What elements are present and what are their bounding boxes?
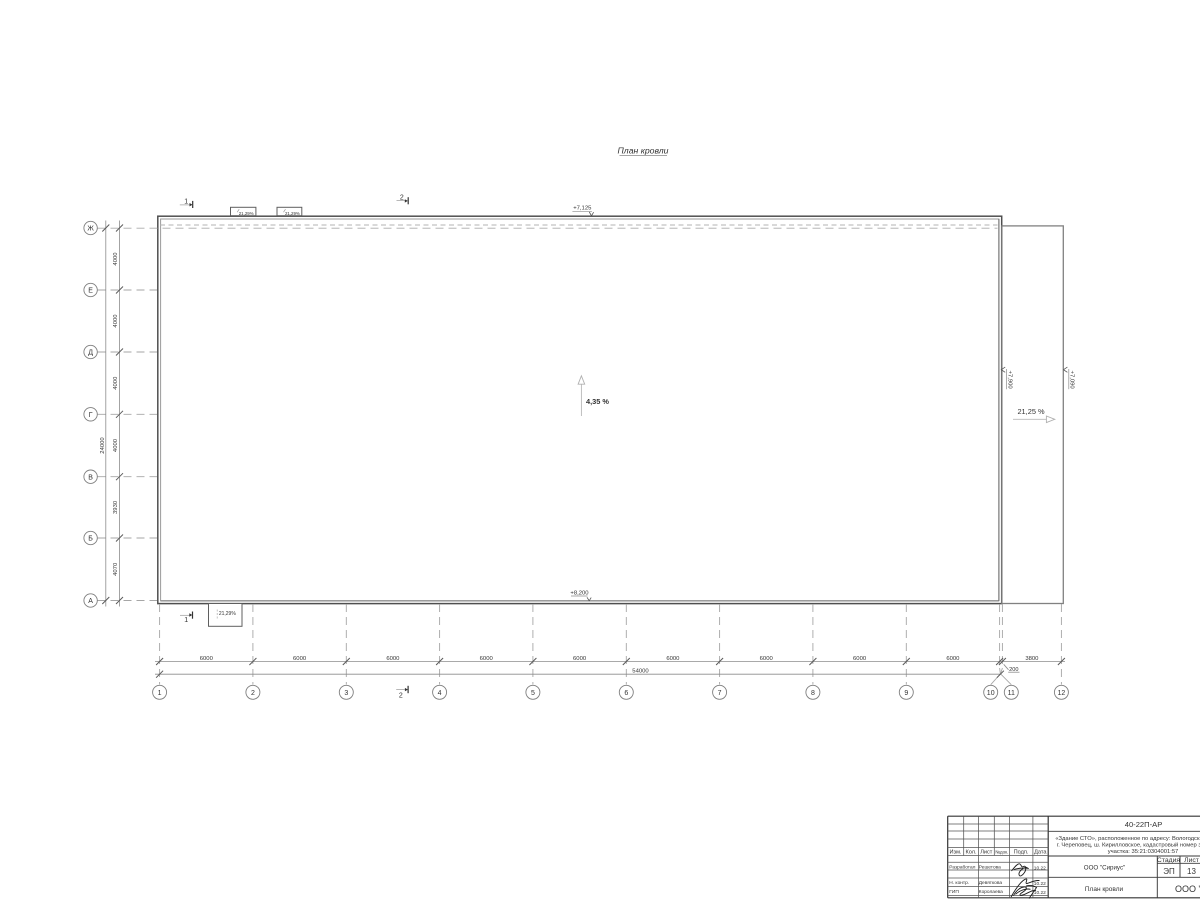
svg-text:План кровли: План кровли [618,146,669,156]
svg-text:8: 8 [811,690,815,697]
svg-text:6000: 6000 [946,656,960,662]
svg-text:4000: 4000 [113,252,119,266]
svg-text:Дата: Дата [1034,850,1047,856]
svg-text:5: 5 [531,690,535,697]
svg-text:Б: Б [88,536,93,543]
svg-text:+7,900: +7,900 [1006,371,1012,390]
svg-text:ГИП: ГИП [949,889,959,895]
svg-text:10.22: 10.22 [1034,881,1046,887]
svg-text:+7,125: +7,125 [573,206,592,212]
svg-text:6000: 6000 [386,656,400,662]
svg-text:№док.: №док. [995,849,1008,854]
svg-text:ЭП: ЭП [1163,867,1175,876]
svg-text:«Здание СТО», расположенное по: «Здание СТО», расположенное по адресу: В… [1055,836,1200,842]
svg-text:12: 12 [1058,690,1066,697]
svg-text:4000: 4000 [113,438,119,452]
svg-text:В: В [88,474,93,481]
svg-text:3: 3 [344,690,348,697]
svg-text:1: 1 [158,690,162,697]
svg-text:Изм.: Изм. [950,850,962,856]
svg-text:21,29%: 21,29% [285,211,300,216]
svg-text:6000: 6000 [666,656,680,662]
svg-text:Кол.: Кол. [965,850,977,856]
svg-text:4000: 4000 [113,376,119,390]
svg-text:10: 10 [987,690,995,697]
svg-text:+8,200: +8,200 [570,590,589,596]
svg-text:4070: 4070 [113,562,119,576]
svg-text:3930: 3930 [113,500,119,514]
svg-text:Ж: Ж [87,226,94,233]
svg-text:40-22П-АР: 40-22П-АР [1125,820,1163,829]
svg-text:21,29%: 21,29% [219,611,237,617]
svg-text:ООО "Сириус": ООО "Сириус" [1084,864,1126,871]
svg-text:участка: 35:21:0304001:57: участка: 35:21:0304001:57 [1108,849,1179,855]
svg-text:6000: 6000 [853,656,867,662]
svg-text:11: 11 [1008,690,1015,697]
svg-text:2: 2 [251,690,255,697]
svg-text:Королаева: Королаева [979,889,1003,895]
svg-text:Е: Е [88,288,93,295]
svg-text:+7,090: +7,090 [1069,371,1075,390]
svg-text:Стадия: Стадия [1157,857,1180,864]
svg-text:Разработал: Разработал [949,864,975,870]
svg-text:А: А [88,598,93,605]
svg-text:Решетова: Решетова [979,864,1001,870]
svg-text:Лист: Лист [1184,857,1199,864]
svg-text:6000: 6000 [293,656,307,662]
svg-text:Лист: Лист [980,850,993,856]
svg-text:54000: 54000 [632,668,649,674]
svg-text:7: 7 [718,690,722,697]
svg-text:21,25 %: 21,25 % [1017,407,1045,416]
svg-text:200: 200 [1009,667,1018,673]
svg-text:Г: Г [89,412,93,419]
svg-text:6000: 6000 [200,656,214,662]
svg-text:4: 4 [438,690,442,697]
svg-text:3800: 3800 [1025,656,1039,662]
svg-text:6000: 6000 [480,656,494,662]
svg-text:Н. контр.: Н. контр. [949,880,969,886]
svg-text:2: 2 [399,693,403,700]
svg-text:г. Череповец, ш. Кирилловское,: г. Череповец, ш. Кирилловское, кадастров… [1057,842,1200,849]
svg-text:4,35 %: 4,35 % [586,397,609,406]
svg-text:4000: 4000 [113,314,119,328]
svg-text:6: 6 [624,690,628,697]
svg-text:21,29%: 21,29% [239,211,254,216]
svg-text:6000: 6000 [760,656,774,662]
svg-text:9: 9 [904,690,908,697]
svg-text:2: 2 [400,194,404,201]
svg-text:24000: 24000 [100,437,106,454]
svg-text:13: 13 [1187,867,1196,876]
svg-text:План кровли: План кровли [1085,886,1124,893]
svg-text:10.22: 10.22 [1034,866,1046,872]
svg-text:Подп.: Подп. [1014,850,1029,856]
svg-text:ООО "Ар: ООО "Ар [1175,884,1200,894]
svg-text:1: 1 [184,199,188,206]
svg-text:Д: Д [88,350,93,357]
svg-text:6000: 6000 [573,656,587,662]
svg-text:1: 1 [184,617,188,624]
svg-text:Девяткова: Девяткова [979,880,1003,886]
